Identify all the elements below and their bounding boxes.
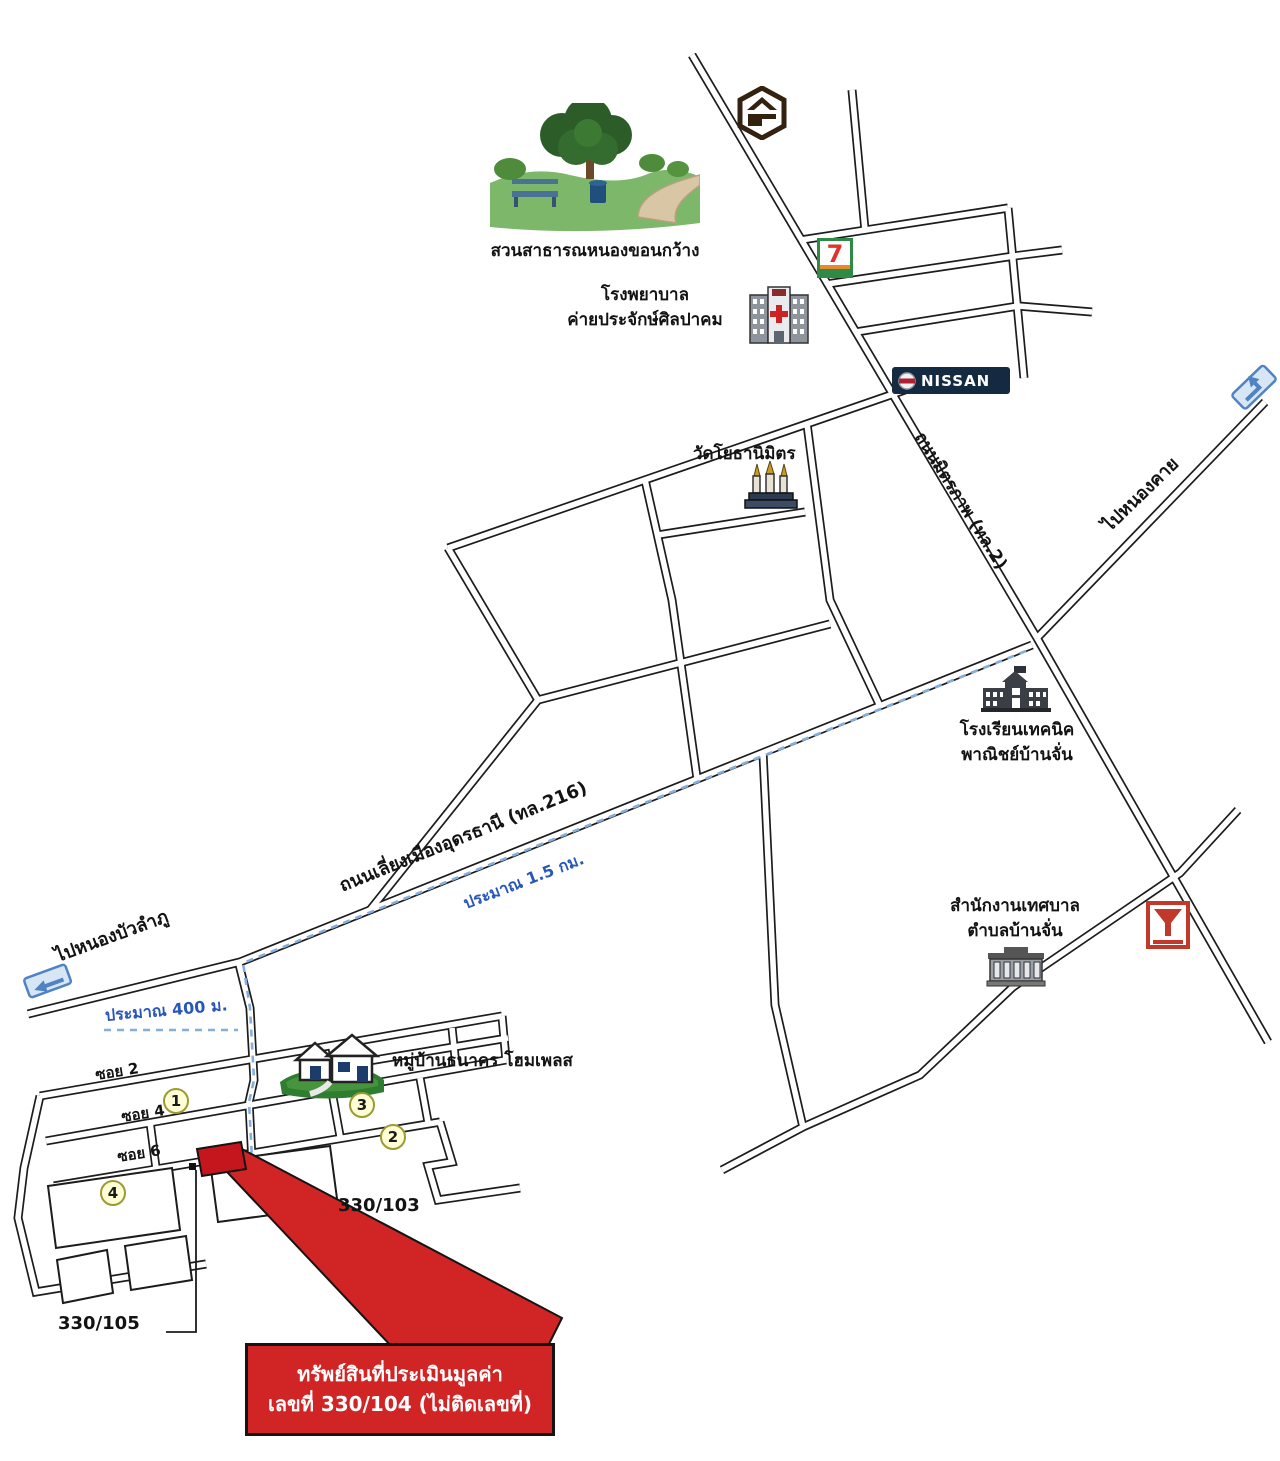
map-canvas: สวนสาธารณหนองขอนกว้าง โรงพยาบาล ค่ายประจ… (0, 0, 1280, 1461)
nissan-sign: NISSAN (892, 367, 1010, 394)
route-dashed-line (104, 651, 1026, 1158)
school-icon (980, 664, 1052, 718)
school-label: โรงเรียนเทคนิค พาณิชย์บ้านจั่น (942, 718, 1092, 767)
property-location-marker (197, 1142, 246, 1176)
municipal-office-label: สำนักงานเทศบาล ตำบลบ้านจั่น (940, 894, 1090, 943)
plot-marker-3: 3 (349, 1092, 375, 1118)
seven-eleven-logo-text: 7 (827, 240, 844, 268)
seven-eleven-icon: 7 (817, 238, 853, 280)
plot-marker-1: 1 (163, 1088, 189, 1114)
municipal-office-label-line2: ตำบลบ้านจั่น (940, 919, 1090, 944)
plot-marker-2: 2 (380, 1124, 406, 1150)
plot-marker-4: 4 (100, 1180, 126, 1206)
property-banner-line1: ทรัพย์สินที่ประเมินมูลค่า (297, 1362, 503, 1387)
school-label-line1: โรงเรียนเทคนิค (942, 718, 1092, 743)
municipal-office-icon (986, 946, 1046, 988)
hospital-label: โรงพยาบาล ค่ายประจักษ์ศิลปาคม (545, 283, 745, 332)
park-label: สวนสาธารณหนองขอนกว้าง (470, 240, 720, 262)
property-callout-wedge (212, 1148, 562, 1347)
village-houses-icon (272, 1024, 392, 1102)
municipal-office-label-line1: สำนักงานเทศบาล (940, 894, 1090, 919)
park-illustration-icon (490, 103, 700, 237)
hospital-label-line1: โรงพยาบาล (545, 283, 745, 308)
village-label: หมู่บ้านธนาคร โฮมเพลส (392, 1050, 573, 1072)
connector-road (763, 753, 803, 1127)
temple-icon (744, 461, 800, 509)
property-banner: ทรัพย์สินที่ประเมินมูลค่า เลขที่ 330/104… (245, 1343, 555, 1436)
hospital-icon (748, 283, 810, 345)
house-number-330-105: 330/105 (58, 1312, 140, 1335)
house-number-330-103: 330/103 (338, 1194, 420, 1217)
nissan-sign-text: NISSAN (921, 372, 990, 390)
housing-authority-logo-icon (737, 86, 787, 140)
school-label-line2: พาณิชย์บ้านจั่น (942, 743, 1092, 768)
property-banner-line2: เลขที่ 330/104 (ไม่ติดเลขที่) (268, 1392, 532, 1417)
nissan-logo-icon (898, 372, 916, 390)
hospital-label-line2: ค่ายประจักษ์ศิลปาคม (545, 308, 745, 333)
red-brand-badge-icon (1146, 901, 1190, 953)
